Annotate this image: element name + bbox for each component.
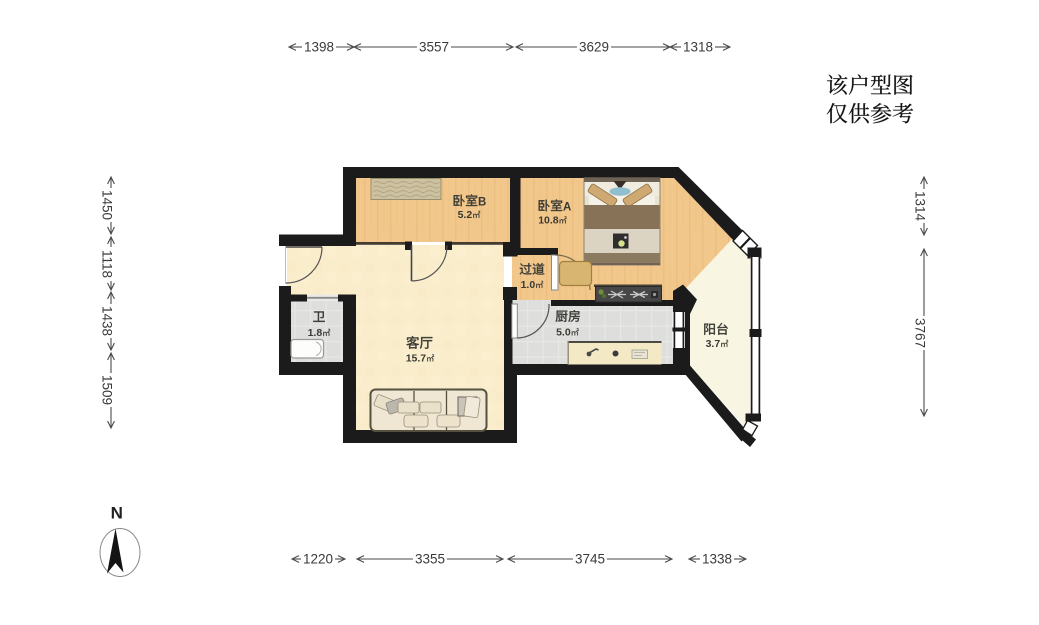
svg-text:0: 0 xyxy=(529,279,535,291)
svg-text:1450: 1450 xyxy=(100,190,115,220)
svg-text:0: 0 xyxy=(565,326,571,338)
svg-text:7: 7 xyxy=(420,352,426,364)
svg-text:A: A xyxy=(563,201,571,213)
svg-text:3629: 3629 xyxy=(579,40,609,55)
svg-text:1398: 1398 xyxy=(304,40,334,55)
svg-text:3767: 3767 xyxy=(913,318,928,348)
svg-text:1118: 1118 xyxy=(100,250,115,278)
svg-text:1314: 1314 xyxy=(913,191,928,222)
svg-text:1509: 1509 xyxy=(100,375,115,405)
svg-text:2: 2 xyxy=(466,209,472,221)
svg-text:3557: 3557 xyxy=(419,40,449,55)
svg-text:B: B xyxy=(478,196,486,208)
svg-text:1338: 1338 xyxy=(702,552,732,567)
svg-text:3355: 3355 xyxy=(415,552,445,567)
svg-text:8: 8 xyxy=(553,214,559,226)
svg-text:1318: 1318 xyxy=(683,40,713,55)
svg-text:8: 8 xyxy=(316,327,322,339)
svg-text:N: N xyxy=(111,504,123,523)
svg-text:1438: 1438 xyxy=(100,306,115,336)
svg-text:7: 7 xyxy=(714,338,720,350)
svg-text:3745: 3745 xyxy=(575,552,605,567)
svg-text:1220: 1220 xyxy=(303,552,333,567)
